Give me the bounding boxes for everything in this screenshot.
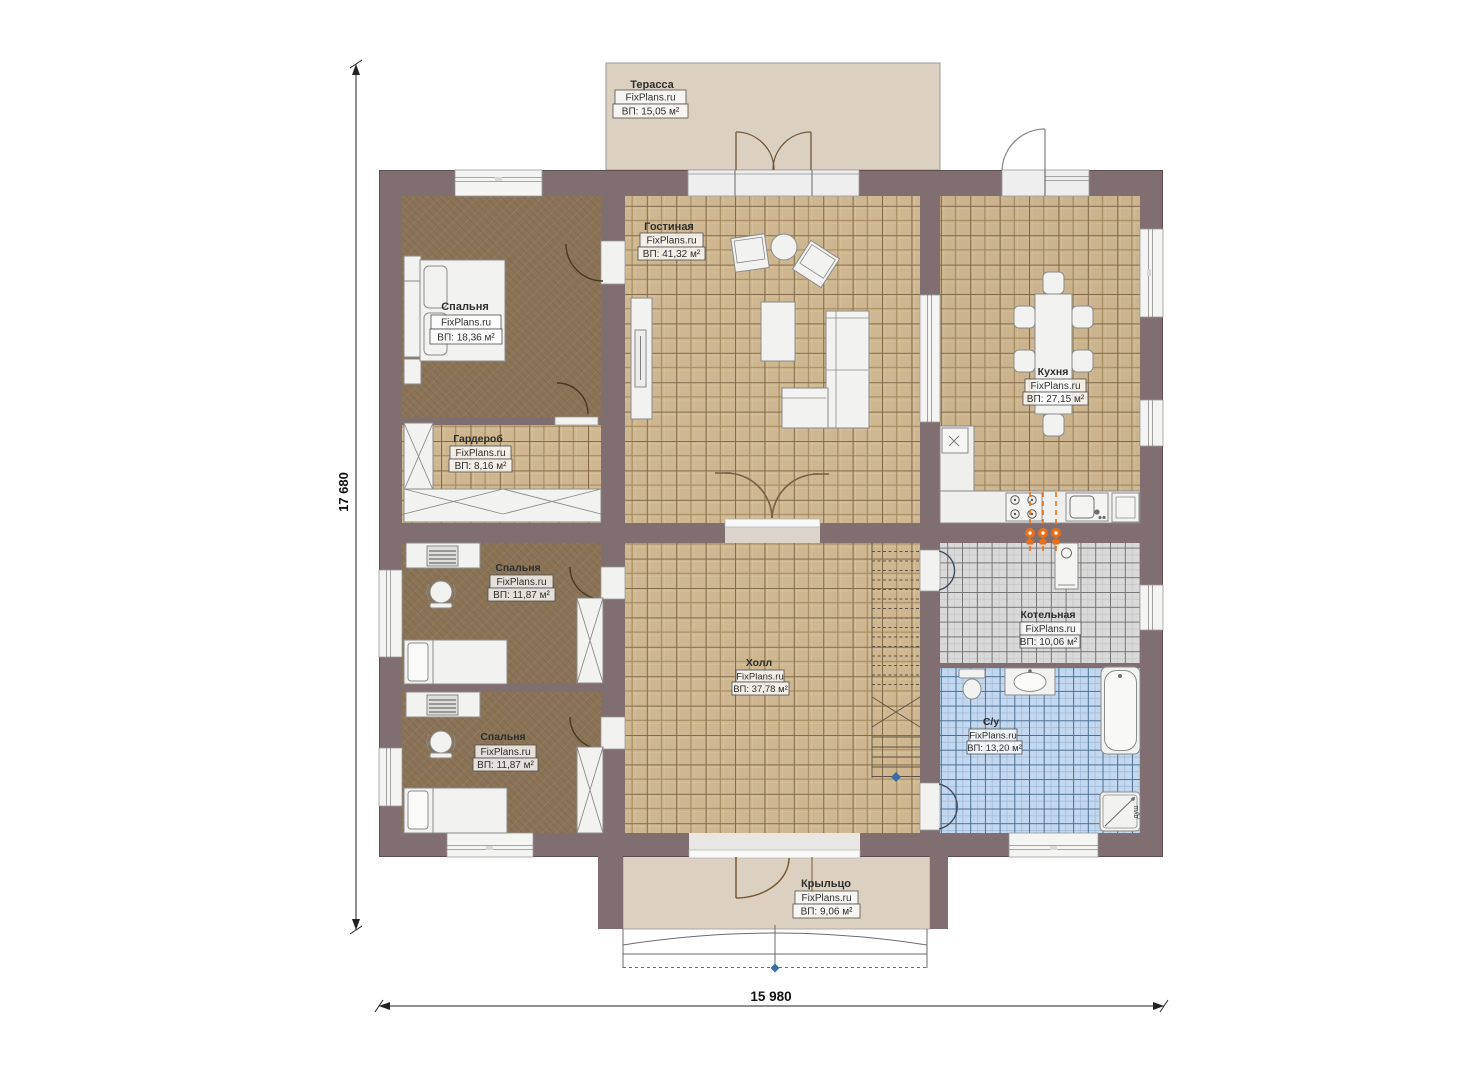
svg-text:ВП: 10,06 м²: ВП: 10,06 м² <box>1020 637 1078 648</box>
svg-text:FixPlans.ru: FixPlans.ru <box>1030 381 1080 392</box>
svg-text:душ: душ <box>1133 805 1140 819</box>
svg-text:Спальня: Спальня <box>480 731 525 743</box>
svg-text:Спальня: Спальня <box>495 562 540 574</box>
svg-text:ВП: 27,15 м²: ВП: 27,15 м² <box>1027 394 1085 405</box>
svg-text:Спальня: Спальня <box>441 301 489 313</box>
svg-text:ВП: 13,20 м²: ВП: 13,20 м² <box>967 743 1022 754</box>
svg-text:15 980: 15 980 <box>750 989 791 1004</box>
svg-text:Терасса: Терасса <box>630 79 674 91</box>
svg-text:FixPlans.ru: FixPlans.ru <box>496 577 546 588</box>
svg-text:FixPlans.ru: FixPlans.ru <box>1025 624 1075 635</box>
svg-text:ВП: 37,78 м²: ВП: 37,78 м² <box>733 684 788 695</box>
svg-text:FixPlans.ru: FixPlans.ru <box>625 93 675 104</box>
svg-text:ВП: 11,87 м²: ВП: 11,87 м² <box>493 590 550 601</box>
svg-text:FixPlans.ru: FixPlans.ru <box>736 672 784 683</box>
svg-text:FixPlans.ru: FixPlans.ru <box>969 731 1017 742</box>
svg-text:FixPlans.ru: FixPlans.ru <box>455 448 505 459</box>
svg-text:ВП: 41,32 м²: ВП: 41,32 м² <box>643 249 701 260</box>
svg-text:FixPlans.ru: FixPlans.ru <box>480 747 530 758</box>
svg-text:ВП: 9,06 м²: ВП: 9,06 м² <box>801 907 854 918</box>
svg-text:С/у: С/у <box>983 716 1000 728</box>
svg-text:Гостиная: Гостиная <box>644 221 694 233</box>
svg-text:17 680: 17 680 <box>336 472 351 512</box>
svg-text:ВП: 11,87 м²: ВП: 11,87 м² <box>477 760 534 771</box>
svg-text:ВП: 8,16 м²: ВП: 8,16 м² <box>455 461 508 472</box>
svg-text:FixPlans.ru: FixPlans.ru <box>801 893 851 904</box>
svg-text:Гардероб: Гардероб <box>453 433 503 445</box>
svg-text:Кухня: Кухня <box>1038 366 1069 378</box>
svg-text:Крыльцо: Крыльцо <box>801 878 851 890</box>
svg-text:Котельная: Котельная <box>1021 609 1076 621</box>
svg-text:ВП: 15,05 м²: ВП: 15,05 м² <box>622 107 680 118</box>
svg-text:FixPlans.ru: FixPlans.ru <box>646 236 696 247</box>
svg-text:Холл: Холл <box>746 657 772 669</box>
svg-text:FixPlans.ru: FixPlans.ru <box>441 318 491 329</box>
svg-text:ВП: 18,36 м²: ВП: 18,36 м² <box>437 333 495 344</box>
